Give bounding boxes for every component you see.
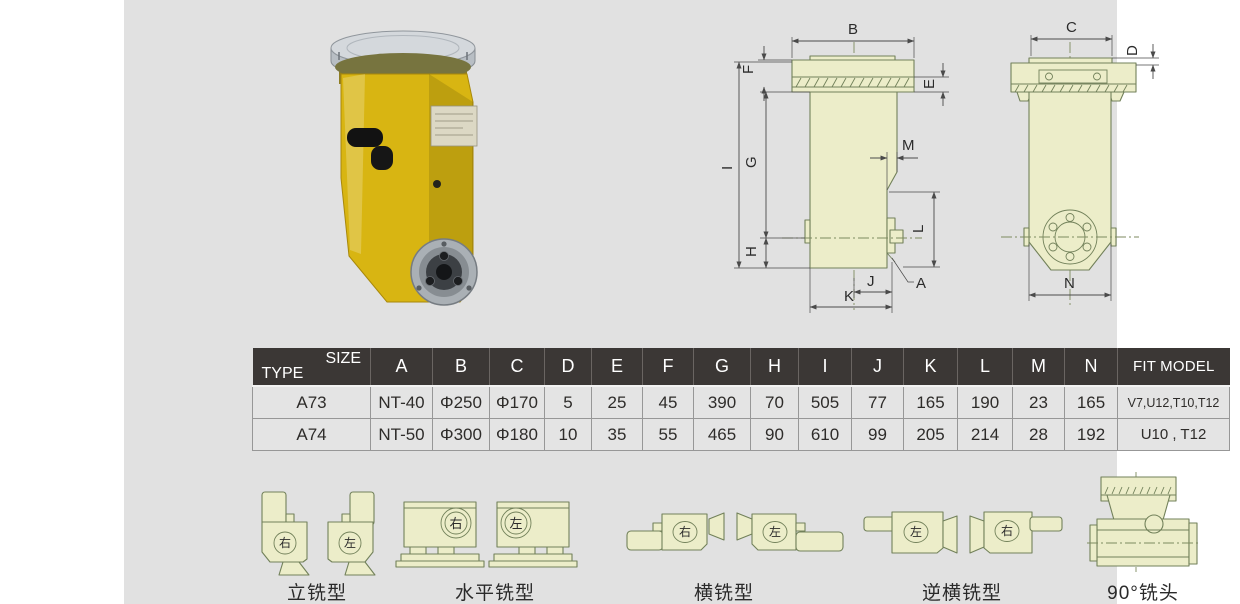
dim-label-L: L bbox=[910, 225, 927, 233]
variant-vertical-figure: 右 左 bbox=[260, 490, 376, 578]
col-header-G: G bbox=[694, 348, 751, 386]
col-header-B: B bbox=[433, 348, 490, 386]
spec-table: SIZE TYPE A B C D E F G H I J K L M N FI… bbox=[252, 348, 1230, 451]
variant-ninety-figure bbox=[1087, 472, 1199, 574]
badge-right: 右 bbox=[1001, 523, 1013, 538]
col-header-M: M bbox=[1013, 348, 1065, 386]
front-view-drawing: B I F G H E M L J K bbox=[722, 10, 972, 330]
cell: 190 bbox=[958, 386, 1013, 419]
side-body bbox=[1029, 92, 1111, 270]
col-header-L: L bbox=[958, 348, 1013, 386]
col-header-A: A bbox=[371, 348, 433, 386]
cell: Φ300 bbox=[433, 419, 490, 451]
col-header-C: C bbox=[490, 348, 545, 386]
cell: 70 bbox=[751, 386, 799, 419]
photo-knob bbox=[347, 128, 383, 147]
dim-label-H: H bbox=[743, 246, 760, 257]
cell: 390 bbox=[694, 386, 751, 419]
variant-label-cross: 横铣型 bbox=[664, 578, 784, 602]
cell: 10 bbox=[545, 419, 592, 451]
corner-size-label: SIZE bbox=[325, 350, 361, 368]
table-corner-cell: SIZE TYPE bbox=[253, 348, 371, 386]
cell: 55 bbox=[643, 419, 694, 451]
dim-label-D: D bbox=[1124, 45, 1141, 56]
variant-label-reverse-cross: 逆横铣型 bbox=[902, 578, 1022, 602]
col-header-I: I bbox=[799, 348, 852, 386]
col-header-F: F bbox=[643, 348, 694, 386]
dim-label-F: F bbox=[740, 65, 757, 74]
photo-spindle bbox=[411, 239, 477, 305]
col-header-fit-model: FIT MODEL bbox=[1118, 348, 1230, 386]
photo-knob-2 bbox=[371, 146, 393, 170]
table-row-a74: A74 NT-50 Φ300 Φ180 10 35 55 465 90 610 … bbox=[253, 419, 1230, 451]
cell: 45 bbox=[643, 386, 694, 419]
badge-left: 左 bbox=[769, 524, 781, 539]
cell: 23 bbox=[1013, 386, 1065, 419]
cell: 77 bbox=[852, 386, 904, 419]
cell-type: A73 bbox=[253, 386, 371, 419]
dim-label-M: M bbox=[902, 137, 915, 154]
cell: 165 bbox=[904, 386, 958, 419]
side-view-drawing: C D N bbox=[987, 10, 1202, 315]
col-header-D: D bbox=[545, 348, 592, 386]
cell: NT-40 bbox=[371, 386, 433, 419]
cell: 99 bbox=[852, 419, 904, 451]
front-clamp-bolt bbox=[890, 230, 903, 243]
side-flange bbox=[1011, 63, 1136, 92]
content-panel: B I F G H E M L J K bbox=[124, 0, 1117, 604]
catalog-page: B I F G H E M L J K bbox=[0, 0, 1240, 604]
col-header-E: E bbox=[592, 348, 643, 386]
corner-type-label: TYPE bbox=[262, 365, 304, 383]
dim-label-G: G bbox=[743, 156, 760, 168]
cell-type: A74 bbox=[253, 419, 371, 451]
cell: 5 bbox=[545, 386, 592, 419]
table-row-a73: A73 NT-40 Φ250 Φ170 5 25 45 390 70 505 7… bbox=[253, 386, 1230, 419]
cell: 505 bbox=[799, 386, 852, 419]
cell: 610 bbox=[799, 419, 852, 451]
photo-nameplate bbox=[431, 106, 477, 146]
col-header-H: H bbox=[751, 348, 799, 386]
dim-label-C: C bbox=[1066, 19, 1077, 36]
col-header-J: J bbox=[852, 348, 904, 386]
variant-label-horizontal: 水平铣型 bbox=[435, 578, 555, 602]
dim-label-A: A bbox=[916, 275, 926, 292]
product-photo bbox=[317, 18, 489, 318]
badge-left: 左 bbox=[344, 535, 356, 550]
cell-fit-model: V7,U12,T10,T12 bbox=[1118, 386, 1230, 419]
cell: 35 bbox=[592, 419, 643, 451]
cell-fit-model: U10 , T12 bbox=[1118, 419, 1230, 451]
variant-label-ninety: 90°铣头 bbox=[1083, 578, 1203, 602]
col-header-K: K bbox=[904, 348, 958, 386]
variant-label-vertical: 立铣型 bbox=[257, 578, 377, 602]
badge-left: 左 bbox=[509, 516, 522, 531]
cell: Φ180 bbox=[490, 419, 545, 451]
cell: 205 bbox=[904, 419, 958, 451]
dim-label-N: N bbox=[1064, 275, 1075, 292]
cell: 90 bbox=[751, 419, 799, 451]
cell: 465 bbox=[694, 419, 751, 451]
cell: 25 bbox=[592, 386, 643, 419]
dim-label-E: E bbox=[921, 79, 938, 89]
badge-right: 右 bbox=[679, 524, 691, 539]
dim-label-B: B bbox=[848, 21, 858, 38]
dim-label-J: J bbox=[867, 273, 875, 290]
dim-label-I: I bbox=[719, 166, 736, 170]
cell: NT-50 bbox=[371, 419, 433, 451]
cell: Φ170 bbox=[490, 386, 545, 419]
variant-cross-figure: 右 左 bbox=[624, 508, 846, 554]
badge-left: 左 bbox=[910, 524, 922, 539]
front-body bbox=[810, 92, 897, 268]
dim-label-K: K bbox=[844, 288, 854, 305]
cell: 214 bbox=[958, 419, 1013, 451]
cell: 192 bbox=[1065, 419, 1118, 451]
variant-reverse-cross-figure: 左 右 bbox=[862, 510, 1064, 555]
table-header-row: SIZE TYPE A B C D E F G H I J K L M N FI… bbox=[253, 348, 1230, 386]
cell: 165 bbox=[1065, 386, 1118, 419]
cell: Φ250 bbox=[433, 386, 490, 419]
badge-right: 右 bbox=[449, 516, 462, 531]
col-header-N: N bbox=[1065, 348, 1118, 386]
badge-right: 右 bbox=[279, 535, 291, 550]
cell: 28 bbox=[1013, 419, 1065, 451]
variant-horizontal-figure: 右 左 bbox=[396, 500, 578, 568]
